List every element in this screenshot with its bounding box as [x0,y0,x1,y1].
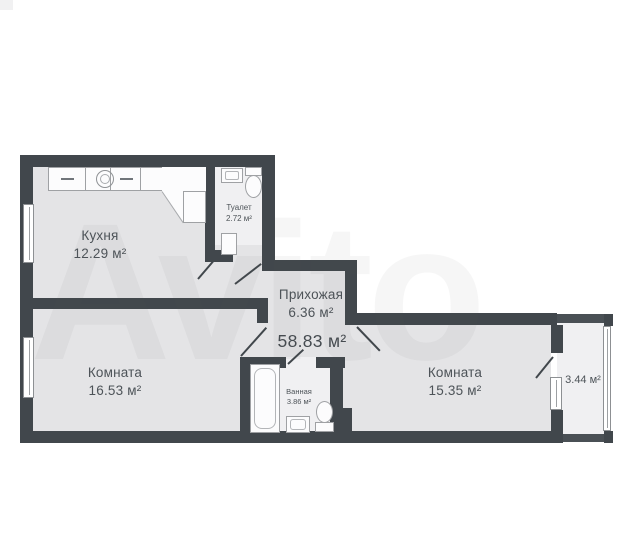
wall-balcony-cap-top [604,314,613,326]
wall-toilet-right-outer [262,155,275,266]
stove-burner-inner-icon [100,174,110,184]
room-right-label: Комната 15.35 м² [395,364,515,400]
room-left-label: Комната 16.53 м² [55,364,175,400]
floor-plan: Кухня 12.29 м² Туалет 2.72 м² Прихожая 6… [0,0,640,554]
toilet-area: 2.72 м² [215,214,263,225]
wall-room-right-side-upper [551,325,563,353]
wall-balcony-bottom [563,434,608,442]
counter-handle-icon [120,178,133,180]
wall-bathroom-right [330,357,343,432]
wall-bathroom-notch [343,408,352,432]
wall-toilet-left [205,166,215,252]
bathroom-sink-basin-icon [290,419,306,430]
wall-balcony-top [557,314,607,323]
room-right-name: Комната [395,364,515,382]
kitchen-counter-cell [140,167,163,191]
toilet-wc-bowl-icon [245,175,262,198]
wall-top [20,155,275,167]
kitchen-counter-cell [183,191,206,223]
bathroom-area: 3.86 м² [273,397,325,407]
toilet-boiler-icon [221,233,237,255]
total-area: 58.83 м² [262,331,362,352]
kitchen-name: Кухня [40,227,160,245]
balcony-area: 3.44 м² [560,374,606,386]
window-pane [29,340,30,395]
wall-room-left-right [240,357,250,432]
toilet-sink-basin-icon [225,171,239,180]
bathroom-name: Ванная [273,387,325,397]
room-left-name: Комната [55,364,175,382]
wall-room-right-top [345,313,557,325]
kitchen-label: Кухня 12.29 м² [40,227,160,263]
toilet-name: Туалет [215,203,263,214]
hallway-name: Прихожая [264,286,358,304]
room-left-area: 16.53 м² [55,382,175,400]
wall-room-right-side-lower [551,410,563,432]
room-left-window [23,337,34,398]
bathroom-label: Ванная 3.86 м² [273,387,325,407]
room-right-area: 15.35 м² [395,382,515,400]
wall-balcony-cap-bottom [604,431,613,443]
bathroom-wc-tank-icon [315,422,334,432]
kitchen-window [23,204,34,263]
wall-hallway-top [262,260,357,271]
wall-kitchen-divider [27,298,268,309]
page-corner-artifact [0,0,13,10]
window-pane [29,207,30,260]
toilet-label: Туалет 2.72 м² [215,203,263,224]
hallway-label: Прихожая 6.36 м² [264,286,358,322]
window-pane [556,380,557,407]
kitchen-area: 12.29 м² [40,245,160,263]
hallway-area: 6.36 м² [264,304,358,322]
window-pane [607,329,608,428]
counter-handle-icon [61,178,74,180]
